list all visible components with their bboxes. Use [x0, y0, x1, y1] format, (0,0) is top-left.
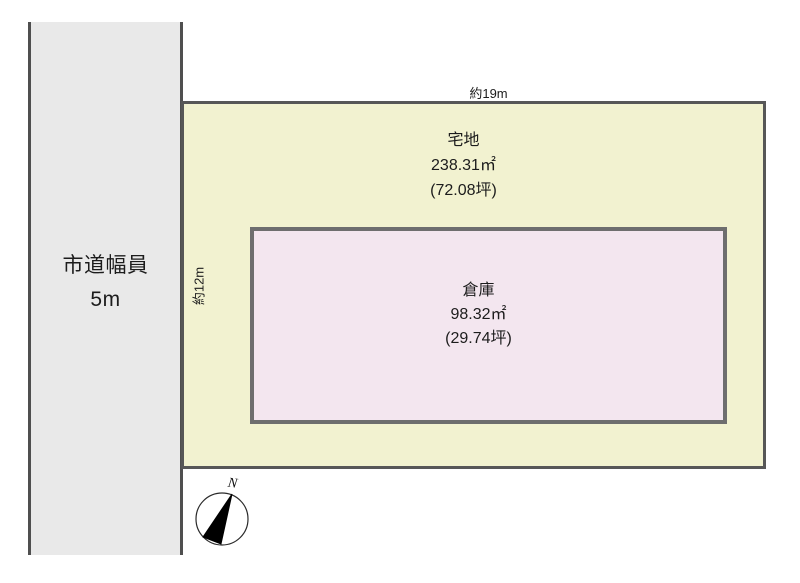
road-label: 市道幅員 5m: [28, 249, 183, 317]
site-plan-diagram: 市道幅員 5m 宅地 238.31㎡ (72.08坪) 倉庫 98.32㎡ (2…: [0, 0, 800, 583]
warehouse-name-text: 倉庫: [250, 279, 707, 303]
compass-north-indicator: N: [192, 472, 256, 550]
plot-name-text: 宅地: [181, 128, 746, 153]
dimension-top-label: 約19m: [181, 83, 796, 102]
plot-label: 宅地 238.31㎡ (72.08坪): [181, 128, 746, 203]
warehouse-area-sqm-text: 98.32㎡: [250, 303, 707, 327]
road-width-text: 5m: [28, 283, 183, 317]
warehouse-area-tsubo-text: (29.74坪): [250, 327, 707, 351]
plot-area-sqm-text: 238.31㎡: [181, 153, 746, 178]
plot-area-tsubo-text: (72.08坪): [181, 178, 746, 203]
dimension-left-label: 約12m: [189, 267, 208, 305]
road-name-text: 市道幅員: [28, 249, 183, 283]
compass-north-label: N: [226, 476, 239, 492]
warehouse-label: 倉庫 98.32㎡ (29.74坪): [250, 279, 707, 351]
